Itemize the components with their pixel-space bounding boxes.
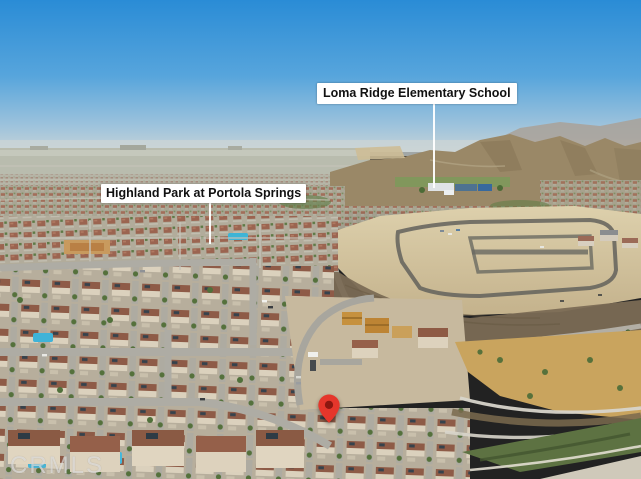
crmls-watermark: CRMLS [10, 452, 104, 479]
open-field-layer [445, 330, 641, 479]
neighborhood-leader-line [209, 199, 211, 244]
school-label: Loma Ridge Elementary School [317, 83, 517, 104]
distant-city-layer [0, 145, 370, 188]
neighborhood-label: Highland Park at Portola Springs [101, 184, 306, 203]
aerial-photo: Loma Ridge Elementary School Highland Pa… [0, 0, 641, 479]
homes-under-construction [285, 296, 470, 410]
location-pin-icon [317, 391, 341, 426]
school-leader-line [433, 104, 435, 188]
